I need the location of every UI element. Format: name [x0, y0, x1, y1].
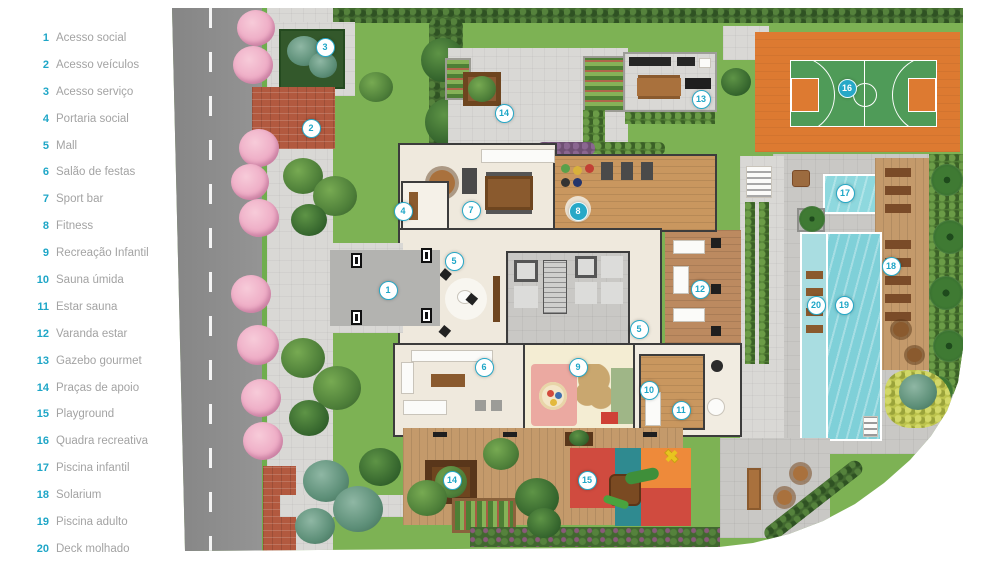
legend-label: Solarium — [56, 489, 101, 501]
legend-label: Sport bar — [56, 193, 103, 205]
plan-marker-15: 15 — [578, 471, 597, 490]
legend-item-3: 3Acesso serviço — [33, 86, 183, 98]
legend-label: Acesso veículos — [56, 59, 139, 71]
legend-number: 10 — [33, 274, 49, 286]
legend-number: 4 — [33, 113, 49, 125]
legend-label: Mall — [56, 140, 77, 152]
legend-number: 11 — [33, 301, 49, 313]
legend-item-9: 9Recreação Infantil — [33, 247, 183, 259]
legend-label: Piscina adulto — [56, 516, 128, 528]
legend-item-19: 19Piscina adulto — [33, 516, 183, 528]
legend-number: 14 — [33, 382, 49, 394]
legend-item-20: 20Deck molhado — [33, 543, 183, 555]
plan-marker-2: 2 — [302, 119, 321, 138]
plan-marker-17: 17 — [836, 184, 855, 203]
legend-number: 16 — [33, 435, 49, 447]
legend-number: 19 — [33, 516, 49, 528]
plan-marker-1: 1 — [379, 281, 398, 300]
legend-item-6: 6Salão de festas — [33, 166, 183, 178]
legend-number: 5 — [33, 140, 49, 152]
legend-item-2: 2Acesso veículos — [33, 59, 183, 71]
legend-label: Fitness — [56, 220, 93, 232]
plan-marker-16: 16 — [838, 79, 857, 98]
legend-label: Recreação Infantil — [56, 247, 149, 259]
legend-label: Salão de festas — [56, 166, 135, 178]
plan-marker-5: 5 — [445, 252, 464, 271]
legend-item-17: 17Piscina infantil — [33, 462, 183, 474]
legend-label: Acesso social — [56, 32, 126, 44]
legend-number: 13 — [33, 355, 49, 367]
legend-item-15: 15Playground — [33, 408, 183, 420]
legend-number: 15 — [33, 408, 49, 420]
legend-label: Acesso serviço — [56, 86, 133, 98]
legend-label: Estar sauna — [56, 301, 117, 313]
legend-number: 9 — [33, 247, 49, 259]
legend-number: 8 — [33, 220, 49, 232]
legend-label: Playground — [56, 408, 114, 420]
legend-number: 1 — [33, 32, 49, 44]
plan-marker-12: 12 — [691, 280, 710, 299]
legend-label: Gazebo gourmet — [56, 355, 142, 367]
site-plan-page: 1Acesso social2Acesso veículos3Acesso se… — [0, 0, 1000, 579]
site-plan: 1234556789101112131414151617181920 — [163, 8, 965, 568]
plan-marker-4: 4 — [394, 202, 413, 221]
legend-item-13: 13Gazebo gourmet — [33, 355, 183, 367]
legend-number: 12 — [33, 328, 49, 340]
plan-marker-20: 20 — [807, 296, 826, 315]
legend-item-12: 12Varanda estar — [33, 328, 183, 340]
legend-number: 18 — [33, 489, 49, 501]
plan-marker-13: 13 — [692, 90, 711, 109]
legend-label: Varanda estar — [56, 328, 127, 340]
legend-label: Piscina infantil — [56, 462, 130, 474]
legend-number: 17 — [33, 462, 49, 474]
plan-marker-10: 10 — [640, 381, 659, 400]
plan-marker-11: 11 — [672, 401, 691, 420]
legend-item-1: 1Acesso social — [33, 32, 183, 44]
legend-item-7: 7Sport bar — [33, 193, 183, 205]
legend-label: Sauna úmida — [56, 274, 124, 286]
legend-item-14: 14Praças de apoio — [33, 382, 183, 394]
legend-label: Praças de apoio — [56, 382, 139, 394]
legend-number: 2 — [33, 59, 49, 71]
legend-item-10: 10Sauna úmida — [33, 274, 183, 286]
legend-label: Deck molhado — [56, 543, 130, 555]
legend-item-4: 4Portaria social — [33, 113, 183, 125]
legend-item-18: 18Solarium — [33, 489, 183, 501]
plan-marker-7: 7 — [462, 201, 481, 220]
legend-item-8: 8Fitness — [33, 220, 183, 232]
legend: 1Acesso social2Acesso veículos3Acesso se… — [33, 32, 183, 555]
legend-label: Quadra recreativa — [56, 435, 148, 447]
plan-markers-layer: 1234556789101112131414151617181920 — [163, 8, 965, 568]
plan-marker-6: 6 — [475, 358, 494, 377]
legend-number: 7 — [33, 193, 49, 205]
legend-number: 3 — [33, 86, 49, 98]
legend-number: 20 — [33, 543, 49, 555]
plan-marker-8: 8 — [569, 202, 588, 221]
plan-marker-3: 3 — [316, 38, 335, 57]
legend-label: Portaria social — [56, 113, 129, 125]
plan-marker-14: 14 — [443, 471, 462, 490]
legend-item-11: 11Estar sauna — [33, 301, 183, 313]
legend-number: 6 — [33, 166, 49, 178]
plan-marker-19: 19 — [835, 296, 854, 315]
plan-marker-18: 18 — [882, 257, 901, 276]
plan-marker-9: 9 — [569, 358, 588, 377]
plan-marker-5: 5 — [630, 320, 649, 339]
legend-item-16: 16Quadra recreativa — [33, 435, 183, 447]
plan-marker-14: 14 — [495, 104, 514, 123]
legend-item-5: 5Mall — [33, 140, 183, 152]
